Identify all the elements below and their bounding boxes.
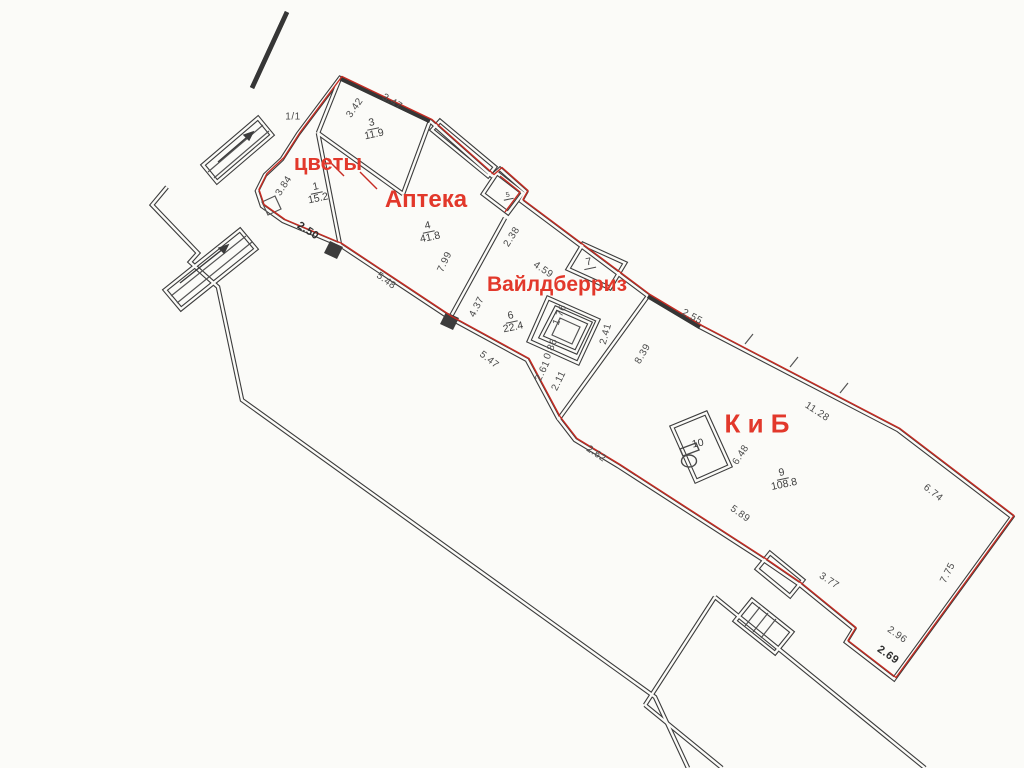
lease-outline-red [259,77,1014,678]
detail-lines [171,125,848,638]
red-door-leaf-1 [326,158,344,176]
ramp-upper [203,118,272,182]
solid-walls [252,12,700,327]
floor-plan-drawing [0,0,1024,768]
left-boundary-wall [152,187,688,768]
walls-core-layer [152,78,1012,768]
shaft-tiny-box [552,318,580,344]
columns [324,241,459,330]
ramp-lower-treads [171,236,252,303]
ramp-lower [165,230,256,309]
window-ticks [745,334,848,393]
walls-outer-layer [152,12,1012,768]
lower-corridor-walls [645,597,925,768]
floor-plan-page: цветы Аптека Вайлдберриз К и Б 1 15.2 3 … [0,0,1024,768]
